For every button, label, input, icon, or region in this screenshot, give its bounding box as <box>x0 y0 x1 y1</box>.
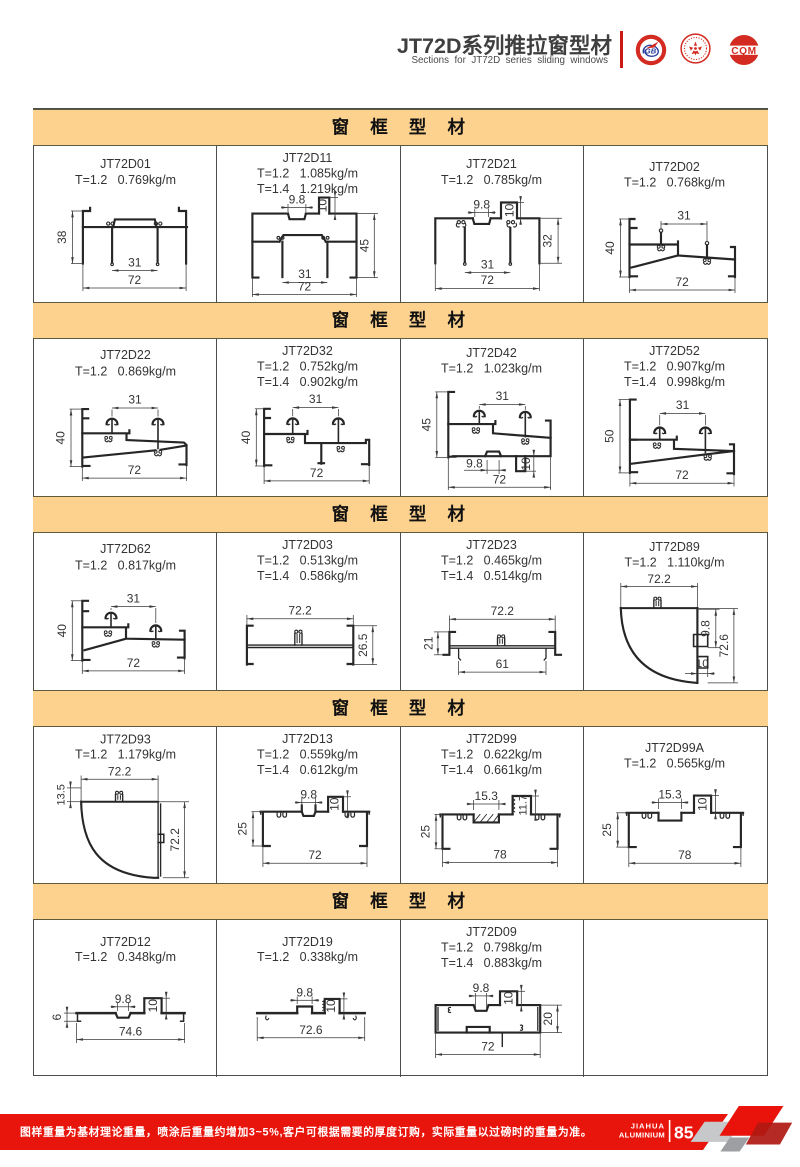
svg-text:JT72D12: JT72D12 <box>100 935 151 949</box>
svg-text:JT72D89: JT72D89 <box>649 540 700 554</box>
svg-text:10: 10 <box>327 797 341 811</box>
svg-text:25: 25 <box>236 821 250 835</box>
svg-text:JT72D02: JT72D02 <box>649 160 700 174</box>
svg-text:72: 72 <box>128 273 142 287</box>
svg-text:31: 31 <box>676 398 690 412</box>
svg-text:72: 72 <box>309 848 323 862</box>
svg-text:40: 40 <box>239 431 253 445</box>
svg-text:31: 31 <box>128 393 142 407</box>
svg-text:9.8: 9.8 <box>472 981 489 995</box>
svg-text:JIAHUA: JIAHUA <box>631 1122 665 1131</box>
svg-text:40: 40 <box>54 431 68 445</box>
svg-text:85: 85 <box>674 1123 694 1143</box>
svg-text:72: 72 <box>492 473 506 487</box>
svg-text:78: 78 <box>678 848 692 862</box>
svg-text:10: 10 <box>502 203 516 217</box>
svg-text:45: 45 <box>419 418 433 432</box>
svg-text:JT72D21: JT72D21 <box>466 157 517 171</box>
svg-text:72.2: 72.2 <box>108 764 132 778</box>
svg-text:72: 72 <box>480 273 494 287</box>
svg-text:31: 31 <box>495 389 509 403</box>
svg-text:T=1.2 1.179kg/m: T=1.2 1.179kg/m <box>75 747 176 761</box>
svg-text:10: 10 <box>501 991 515 1005</box>
svg-text:T=1.2 0.559kg/m: T=1.2 0.559kg/m <box>257 747 358 761</box>
svg-text:32: 32 <box>540 234 554 248</box>
svg-text:JT72D13: JT72D13 <box>282 732 333 746</box>
svg-text:15.3: 15.3 <box>474 789 498 803</box>
svg-text:72.6: 72.6 <box>717 634 731 658</box>
svg-text:JT72D99A: JT72D99A <box>645 741 705 755</box>
svg-text:9.8: 9.8 <box>289 192 306 206</box>
svg-text:15.3: 15.3 <box>658 787 682 801</box>
svg-text:JT72D99: JT72D99 <box>466 732 517 746</box>
svg-text:50: 50 <box>603 430 617 444</box>
svg-text:T=1.4 1.219kg/m: T=1.4 1.219kg/m <box>257 182 358 196</box>
svg-text:74.6: 74.6 <box>119 1025 143 1039</box>
svg-text:9.8: 9.8 <box>115 992 132 1006</box>
svg-text:72.6: 72.6 <box>299 1023 323 1037</box>
svg-text:JT72D52: JT72D52 <box>649 344 700 358</box>
svg-text:JT72D01: JT72D01 <box>100 157 151 171</box>
svg-text:JT72D42: JT72D42 <box>466 346 517 360</box>
svg-text:10: 10 <box>695 797 709 811</box>
svg-text:T=1.2 0.785kg/m: T=1.2 0.785kg/m <box>441 173 542 187</box>
svg-text:JT72D03: JT72D03 <box>282 538 333 552</box>
svg-text:31: 31 <box>677 208 691 222</box>
svg-text:T=1.4 0.661kg/m: T=1.4 0.661kg/m <box>441 763 542 777</box>
svg-text:JT72D11: JT72D11 <box>283 151 333 165</box>
svg-text:31: 31 <box>128 255 142 269</box>
svg-text:T=1.2 1.085kg/m: T=1.2 1.085kg/m <box>257 166 358 180</box>
svg-text:31: 31 <box>309 392 323 406</box>
svg-text:T=1.2 0.348kg/m: T=1.2 0.348kg/m <box>75 950 176 964</box>
svg-text:T=1.2 0.768kg/m: T=1.2 0.768kg/m <box>624 175 725 189</box>
svg-text:T=1.2 0.869kg/m: T=1.2 0.869kg/m <box>75 365 176 379</box>
svg-text:JT72D22: JT72D22 <box>100 348 151 362</box>
svg-text:72.2: 72.2 <box>289 603 313 617</box>
svg-text:72: 72 <box>298 279 312 293</box>
svg-text:25: 25 <box>600 822 614 836</box>
svg-text:20: 20 <box>540 1012 554 1026</box>
svg-text:31: 31 <box>480 257 494 271</box>
svg-text:10: 10 <box>519 457 533 471</box>
svg-text:JT72D32: JT72D32 <box>282 344 333 358</box>
svg-text:72: 72 <box>128 463 142 477</box>
svg-text:9.8: 9.8 <box>301 787 318 801</box>
svg-text:40: 40 <box>603 241 617 255</box>
svg-text:40: 40 <box>55 624 69 638</box>
svg-text:10: 10 <box>696 658 709 670</box>
svg-text:T=1.4 0.998kg/m: T=1.4 0.998kg/m <box>624 375 725 389</box>
svg-text:T=1.2 1.023kg/m: T=1.2 1.023kg/m <box>441 362 542 376</box>
svg-text:JT72D09: JT72D09 <box>466 925 517 939</box>
svg-text:45: 45 <box>358 239 372 253</box>
svg-text:11.7: 11.7 <box>517 795 529 816</box>
svg-text:T=1.2 0.465kg/m: T=1.2 0.465kg/m <box>441 553 542 567</box>
svg-text:9.8: 9.8 <box>473 198 490 212</box>
svg-text:9.8: 9.8 <box>698 620 712 637</box>
svg-text:JT72D62: JT72D62 <box>100 542 151 556</box>
svg-text:72.2: 72.2 <box>490 604 514 618</box>
svg-text:9.8: 9.8 <box>297 986 314 1000</box>
svg-text:72: 72 <box>675 469 689 483</box>
svg-text:72: 72 <box>481 1040 495 1054</box>
svg-text:21: 21 <box>421 636 435 650</box>
svg-text:72: 72 <box>676 275 690 289</box>
svg-text:T=1.2 0.338kg/m: T=1.2 0.338kg/m <box>257 950 358 964</box>
svg-text:T=1.2 0.622kg/m: T=1.2 0.622kg/m <box>441 747 542 761</box>
svg-text:72.2: 72.2 <box>647 572 671 586</box>
svg-text:T=1.2 0.513kg/m: T=1.2 0.513kg/m <box>257 553 358 567</box>
svg-text:T=1.4 0.612kg/m: T=1.4 0.612kg/m <box>257 763 358 777</box>
svg-text:13.5: 13.5 <box>56 784 68 805</box>
svg-text:T=1.4 0.902kg/m: T=1.4 0.902kg/m <box>257 375 358 389</box>
svg-text:25: 25 <box>418 824 432 838</box>
svg-text:T=1.2 0.817kg/m: T=1.2 0.817kg/m <box>75 558 176 572</box>
svg-text:图样重量为基材理论重量，喷涂后重量约增加3~5%,客户可根据: 图样重量为基材理论重量，喷涂后重量约增加3~5%,客户可根据需要的厚度订购，实际… <box>20 1125 592 1139</box>
svg-text:6: 6 <box>50 1014 64 1021</box>
svg-text:T=1.2 1.110kg/m: T=1.2 1.110kg/m <box>624 555 724 569</box>
svg-text:10: 10 <box>316 199 330 213</box>
svg-text:JT72D23: JT72D23 <box>466 538 517 552</box>
svg-text:26.5: 26.5 <box>356 633 370 657</box>
svg-text:ALUMINIUM: ALUMINIUM <box>619 1131 665 1140</box>
svg-text:T=1.4 0.586kg/m: T=1.4 0.586kg/m <box>257 569 358 583</box>
svg-text:10: 10 <box>324 999 338 1013</box>
svg-text:72: 72 <box>127 656 141 670</box>
svg-text:T=1.2 0.752kg/m: T=1.2 0.752kg/m <box>257 360 358 374</box>
svg-text:T=1.2 0.798kg/m: T=1.2 0.798kg/m <box>441 941 542 955</box>
svg-text:9.8: 9.8 <box>466 457 483 471</box>
svg-text:72: 72 <box>310 466 324 480</box>
svg-text:JT72D93: JT72D93 <box>100 732 151 746</box>
svg-text:10: 10 <box>146 999 160 1013</box>
svg-text:78: 78 <box>493 847 507 861</box>
svg-text:72.2: 72.2 <box>168 827 182 851</box>
svg-text:CQM: CQM <box>731 46 757 57</box>
svg-text:T=1.2 0.907kg/m: T=1.2 0.907kg/m <box>624 360 725 374</box>
svg-text:31: 31 <box>127 591 141 605</box>
svg-text:61: 61 <box>495 657 509 671</box>
svg-text:T=1.4 0.514kg/m: T=1.4 0.514kg/m <box>441 569 542 583</box>
svg-text:38: 38 <box>55 230 69 244</box>
svg-text:T=1.2 0.769kg/m: T=1.2 0.769kg/m <box>75 173 176 187</box>
svg-text:T=1.4 0.883kg/m: T=1.4 0.883kg/m <box>441 956 542 970</box>
svg-text:JT72D19: JT72D19 <box>282 935 333 949</box>
svg-text:T=1.2 0.565kg/m: T=1.2 0.565kg/m <box>624 756 725 770</box>
